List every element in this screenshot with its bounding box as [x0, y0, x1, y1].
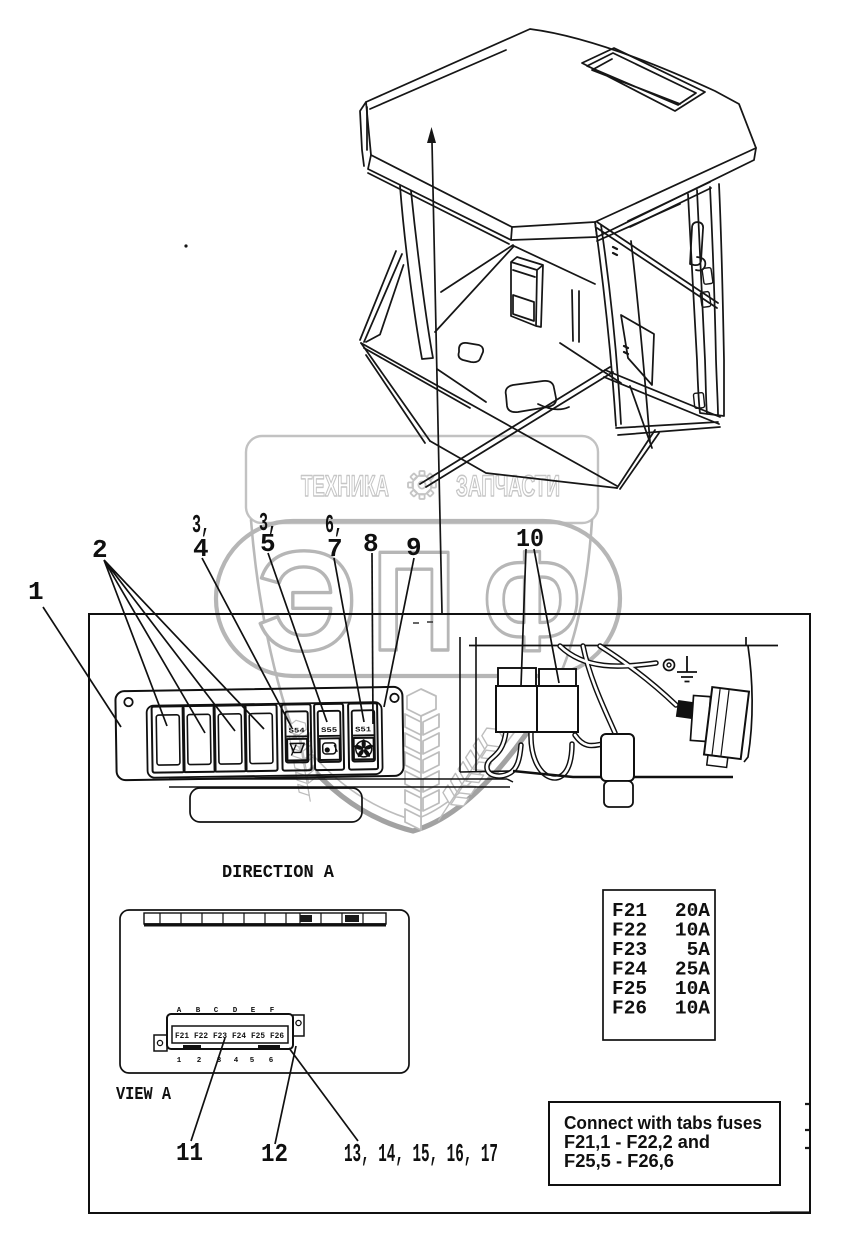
svg-text:1: 1	[28, 577, 44, 607]
svg-text:S54: S54	[289, 727, 305, 735]
svg-text:ТЕХНИКА: ТЕХНИКА	[301, 470, 389, 503]
svg-text:C: C	[214, 1007, 219, 1015]
svg-text:10A: 10A	[675, 998, 710, 1020]
svg-text:6: 6	[269, 1057, 274, 1065]
svg-text:F25: F25	[251, 1032, 265, 1041]
svg-text:5: 5	[250, 1057, 255, 1065]
svg-text:12: 12	[261, 1139, 288, 1169]
svg-text:5: 5	[260, 529, 276, 559]
svg-text:7: 7	[327, 534, 343, 564]
svg-text:9: 9	[406, 533, 422, 563]
svg-text:2: 2	[197, 1057, 202, 1065]
svg-text:S55: S55	[321, 727, 337, 735]
svg-text:10: 10	[516, 524, 544, 554]
svg-text:D: D	[233, 1007, 238, 1015]
svg-text:A: A	[177, 1007, 182, 1015]
svg-text:F21: F21	[175, 1032, 189, 1041]
svg-text:1: 1	[177, 1057, 182, 1065]
svg-text:4: 4	[193, 534, 209, 564]
svg-text:S51: S51	[355, 726, 371, 734]
svg-text:F22: F22	[194, 1032, 208, 1041]
svg-text:F21,1 - F22,2 and: F21,1 - F22,2 and	[564, 1131, 710, 1152]
svg-text:F25,5 - F26,6: F25,5 - F26,6	[564, 1150, 674, 1171]
svg-text:B: B	[196, 1007, 201, 1015]
svg-text:11: 11	[176, 1138, 203, 1168]
svg-text:F: F	[270, 1007, 275, 1015]
svg-text:4: 4	[234, 1057, 239, 1065]
svg-text:VIEW A: VIEW A	[116, 1085, 171, 1105]
svg-text:F26: F26	[612, 998, 647, 1020]
svg-text:F26: F26	[270, 1032, 284, 1041]
svg-text:Connect with tabs fuses: Connect with tabs fuses	[564, 1112, 762, 1133]
svg-text:F24: F24	[232, 1032, 246, 1041]
svg-text:DIRECTION A: DIRECTION A	[222, 863, 334, 883]
svg-text:E: E	[251, 1007, 256, 1015]
svg-text:8: 8	[363, 529, 379, 559]
svg-text:2: 2	[92, 535, 108, 565]
svg-text:13, 14, 15, 16, 17: 13, 14, 15, 16, 17	[344, 1139, 498, 1169]
